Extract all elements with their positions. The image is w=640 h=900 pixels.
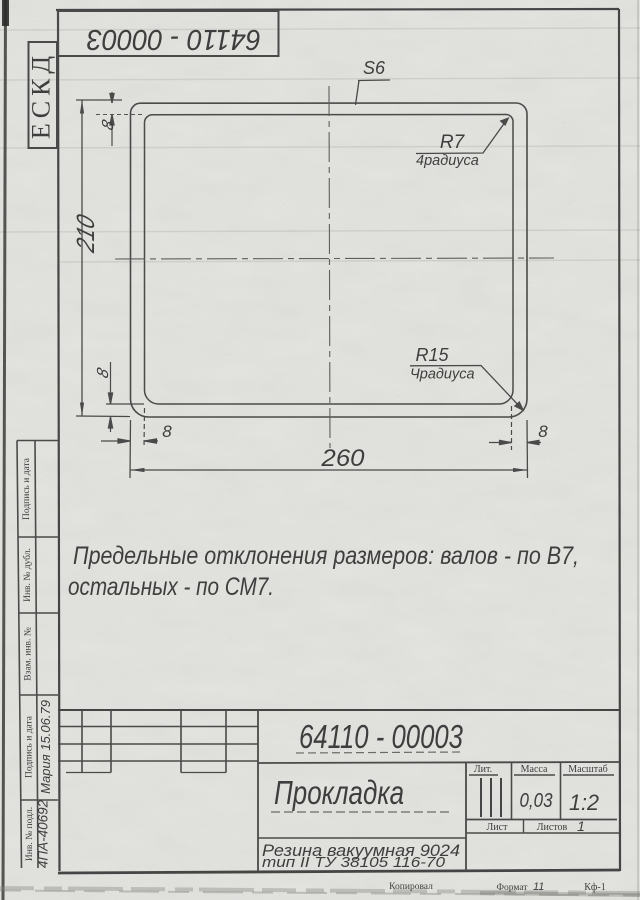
svg-text:1:2: 1:2 [569,790,599,815]
svg-text:Лист: Лист [487,822,509,833]
svg-text:Кф-1: Кф-1 [584,882,605,893]
svg-text:64110 - 00003: 64110 - 00003 [299,718,463,755]
svg-text:Мария 15.06.79: Мария 15.06.79 [38,700,53,794]
svg-text:11: 11 [533,881,544,893]
svg-text:Масштаб: Масштаб [568,764,608,775]
svg-text:Масса: Масса [521,764,548,775]
svg-text:8: 8 [538,422,548,441]
svg-text:тип II ТУ 38105 116-70: тип II ТУ 38105 116-70 [262,854,446,871]
svg-text:R15: R15 [415,345,449,365]
svg-text:S6: S6 [363,58,386,78]
svg-text:Лит.: Лит. [474,764,492,775]
svg-text:1: 1 [577,818,585,834]
svg-text:Формат: Формат [497,883,529,893]
svg-text:Копировал: Копировал [389,882,433,892]
svg-text:Прокладка: Прокладка [274,774,404,811]
svg-text:0,03: 0,03 [520,790,553,812]
svg-text:64110 - 00003: 64110 - 00003 [87,23,261,55]
svg-text:260: 260 [320,445,365,472]
svg-text:остальных - по СМ7.: остальных - по СМ7. [68,573,274,601]
svg-text:Подпись и дата: Подпись и дата [24,715,34,778]
svg-text:Предельные отклонения размеров: Предельные отклонения размеров: валов - … [73,542,579,570]
svg-text:Инв. № дубл.: Инв. № дубл. [22,548,33,602]
svg-text:Листов: Листов [537,822,568,833]
svg-text:Инв. № подл.: Инв. № подл. [25,807,35,861]
svg-text:R7: R7 [440,132,466,153]
svg-text:4ПА-40692: 4ПА-40692 [36,799,51,868]
svg-text:Подпись и дата: Подпись и дата [22,457,32,520]
svg-text:Чрадиуса: Чрадиуса [410,367,475,383]
svg-text:4радиуса: 4радиуса [416,153,479,169]
svg-text:ЕСКД: ЕСКД [27,51,56,139]
svg-text:8: 8 [162,422,172,441]
svg-text:Взам. инв. №: Взам. инв. № [24,627,34,681]
